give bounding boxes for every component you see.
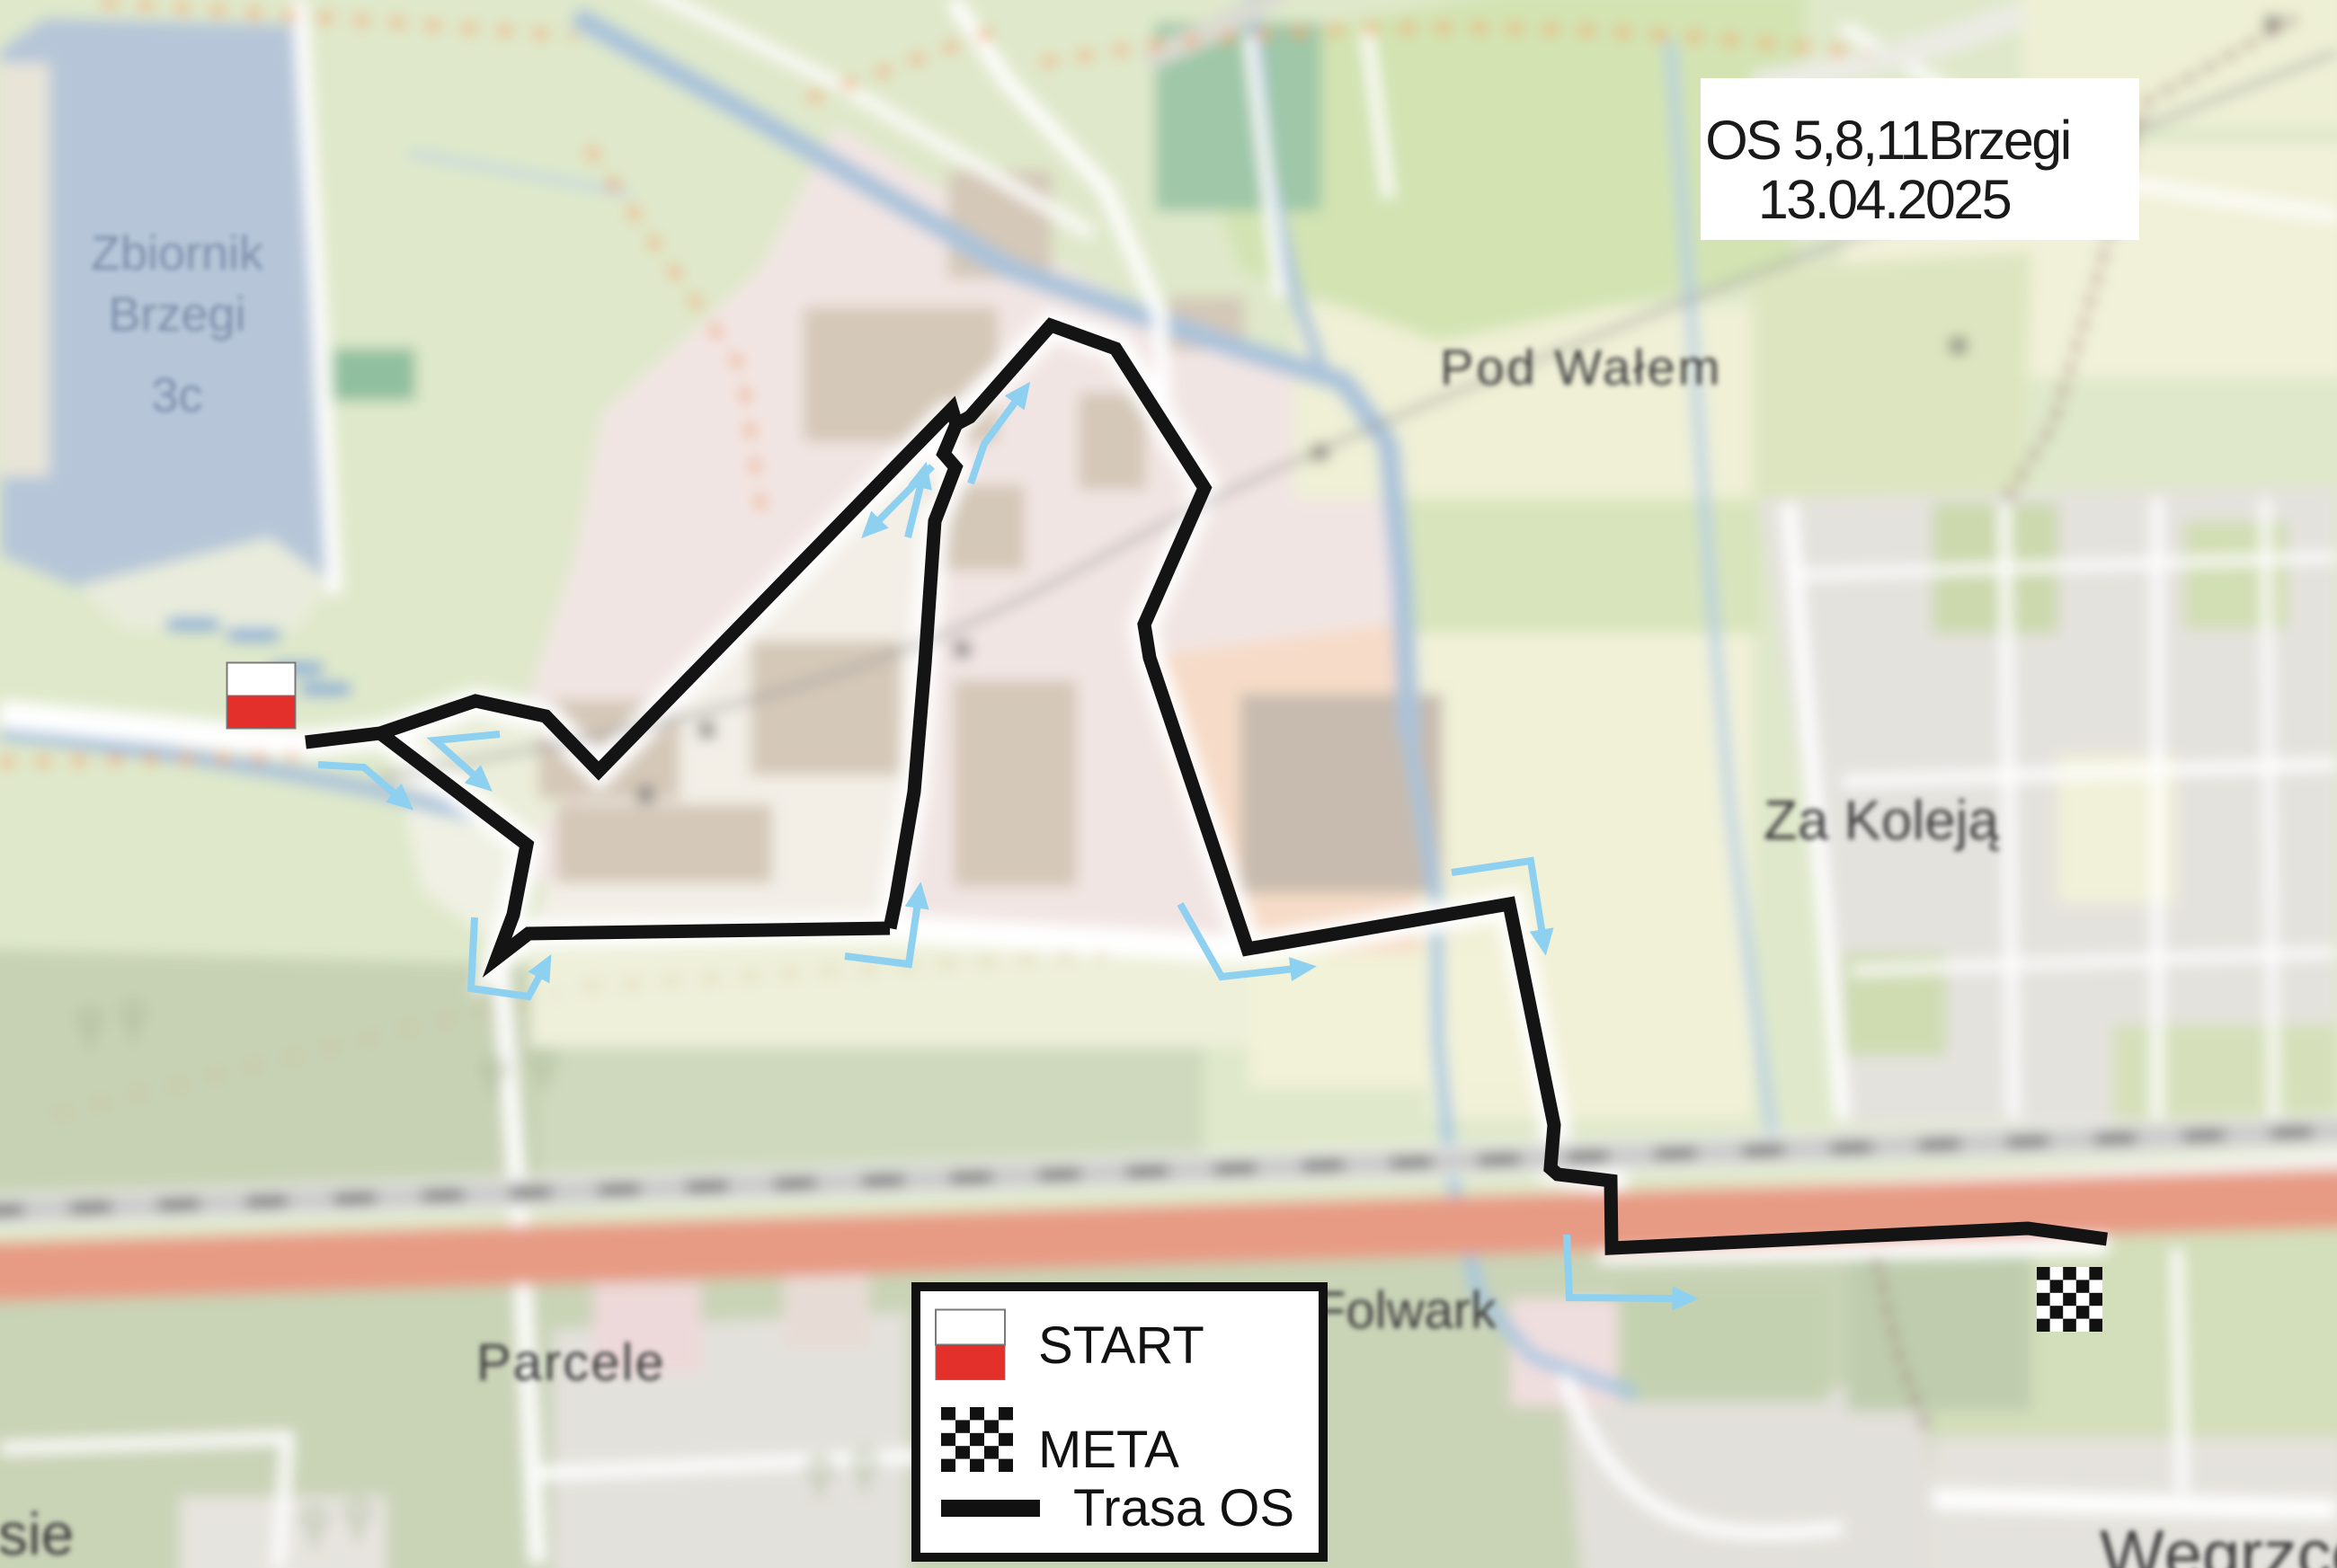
svg-text:Węgrzce: Węgrzce — [2100, 1517, 2337, 1568]
svg-text:Parcele: Parcele — [476, 1333, 666, 1392]
svg-text:Trasa OS: Trasa OS — [1073, 1479, 1294, 1537]
svg-text:Za Koleją: Za Koleją — [1764, 790, 1999, 852]
svg-text:Folwark: Folwark — [1314, 1281, 1497, 1340]
svg-text:13.04.2025: 13.04.2025 — [1758, 169, 2011, 230]
svg-text:Brzegi: Brzegi — [108, 288, 245, 341]
svg-text:Pod Wałem: Pod Wałem — [1440, 339, 1722, 395]
svg-text:OS 5,8,11Brzegi: OS 5,8,11Brzegi — [1705, 110, 2070, 171]
svg-text:sie: sie — [0, 1501, 74, 1567]
svg-text:Zbiornik: Zbiornik — [91, 226, 264, 280]
svg-text:START: START — [1038, 1316, 1204, 1375]
svg-text:3c: 3c — [151, 368, 202, 422]
svg-text:META: META — [1038, 1421, 1179, 1479]
